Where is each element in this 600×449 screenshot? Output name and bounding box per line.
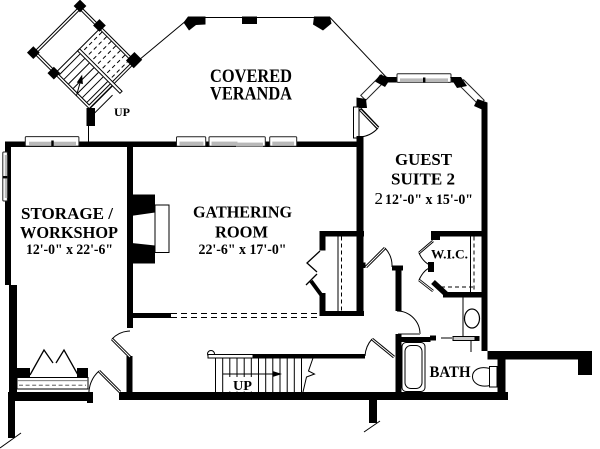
svg-text:WORKSHOP: WORKSHOP	[20, 223, 118, 242]
svg-text:VERANDA: VERANDA	[210, 84, 292, 105]
svg-text:12'-0" x 22'-6": 12'-0" x 22'-6"	[26, 242, 113, 258]
svg-text:2: 2	[375, 189, 384, 208]
svg-text:STORAGE /: STORAGE /	[21, 204, 113, 223]
svg-text:SUITE 2: SUITE 2	[391, 170, 455, 189]
svg-text:ROOM: ROOM	[215, 223, 268, 242]
svg-text:GUEST: GUEST	[395, 150, 452, 169]
svg-text:12'-0" x 15'-0": 12'-0" x 15'-0"	[385, 192, 473, 208]
svg-text:GATHERING: GATHERING	[193, 203, 292, 222]
svg-text:22'-6" x 17'-0": 22'-6" x 17'-0"	[199, 242, 287, 258]
svg-text:UP: UP	[114, 105, 130, 119]
svg-text:BATH: BATH	[430, 364, 472, 381]
svg-text:W.I.C.: W.I.C.	[431, 247, 468, 262]
svg-text:UP: UP	[233, 379, 252, 394]
